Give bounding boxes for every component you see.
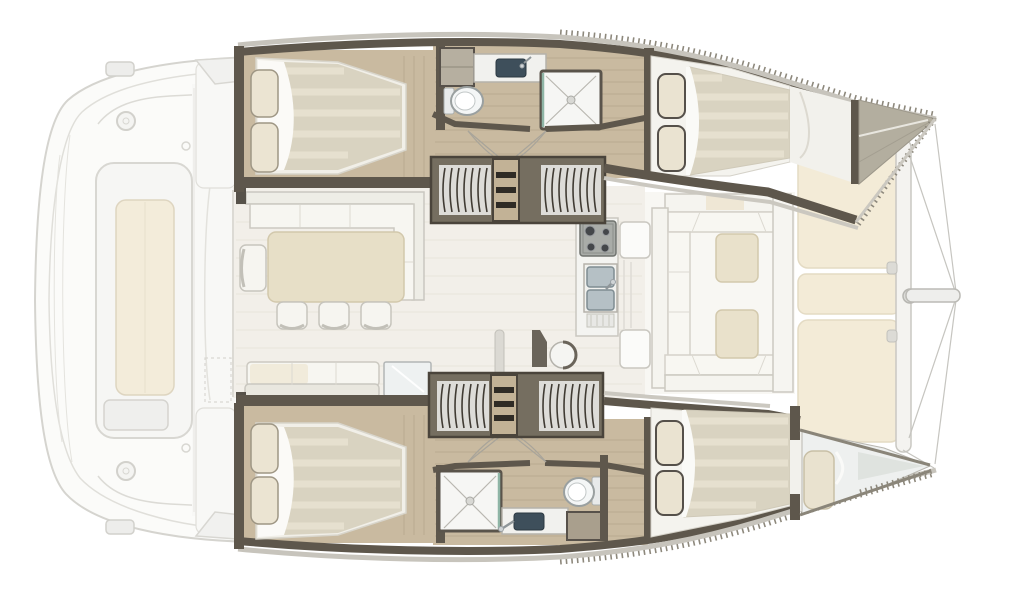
cleat-bottom <box>106 520 134 534</box>
stbd-bow-bulkhead-top <box>790 406 800 440</box>
winch-bottom <box>117 462 135 480</box>
sink-basin-2 <box>587 290 614 310</box>
stove <box>580 221 616 256</box>
stbd-bow-bulkhead-bottom <box>790 494 800 520</box>
stbd-sink <box>514 513 544 530</box>
fwd-seat-bottom-back <box>665 375 791 391</box>
foredeck-panel-3 <box>798 320 900 442</box>
winch-top <box>117 112 135 130</box>
stbd-forepeak-pillow <box>804 451 834 509</box>
stbd-fwd-pillow-2 <box>656 471 683 515</box>
burner-2 <box>603 229 610 236</box>
stbd-sink-faucet-base <box>499 527 504 532</box>
rigging-line-1 <box>909 154 955 291</box>
port-vanity-faucet-base <box>520 64 524 68</box>
saloon-table <box>268 232 404 302</box>
stbd-head-cabinet <box>567 512 603 540</box>
galley-console-bottom <box>620 330 650 368</box>
rigging-line-4 <box>935 300 956 464</box>
port-shower-drain <box>567 96 575 104</box>
stbd-fwd-pillow-1 <box>656 421 683 465</box>
galley-console-top <box>620 222 650 258</box>
port-fwd-pillow-2 <box>658 126 685 171</box>
rigging-line-2 <box>909 301 955 438</box>
fwd-seat-top <box>665 212 791 232</box>
port-aft-cabin-left-wall <box>234 46 244 192</box>
fwd-cockpit-step <box>773 196 793 392</box>
cleat-top <box>106 62 134 76</box>
fwd-table-2 <box>716 310 758 358</box>
crossbeam-tab-2 <box>887 330 897 342</box>
port-stairs-right-treads <box>541 165 601 215</box>
bowsprit <box>906 289 960 302</box>
stbd-toilet-seat <box>568 483 586 501</box>
burner-1 <box>585 226 595 236</box>
port-aft-pillow-1 <box>251 70 278 117</box>
stbd-shower-drain <box>466 497 474 505</box>
port-bow-bulkhead <box>851 100 859 184</box>
floorplan-canvas <box>0 0 1024 597</box>
stbd-aft-pillow-1 <box>251 424 278 473</box>
port-aft-pillow-2 <box>251 123 278 172</box>
port-aft-cabin-saloon-wall <box>237 177 451 188</box>
stbd-aft-cabin-left-wall <box>234 403 244 549</box>
stbd-aft-pillow-2 <box>251 477 278 524</box>
stbd-head-right-wall <box>600 455 608 541</box>
foredeck-panel-2 <box>798 274 900 314</box>
burner-4 <box>601 244 609 252</box>
cockpit-side-table <box>104 400 168 430</box>
rigging-line-3 <box>935 124 956 292</box>
fwd-seat-left <box>668 232 690 356</box>
burner-3 <box>587 243 595 251</box>
fwd-table-1 <box>716 234 758 282</box>
stbd-aft-cabin-saloon-wall <box>237 395 451 406</box>
galley-faucet-base <box>611 280 616 285</box>
aft-sofa-cushion <box>250 364 308 384</box>
port-fwd-pillow-1 <box>658 74 685 118</box>
catamaran-floorplan <box>0 0 1024 597</box>
crossbeam-tab-1 <box>887 262 897 274</box>
port-toilet-seat <box>455 92 475 110</box>
stbd-stairs-right-treads <box>539 381 599 431</box>
stbd-corridor-floor <box>603 419 648 433</box>
